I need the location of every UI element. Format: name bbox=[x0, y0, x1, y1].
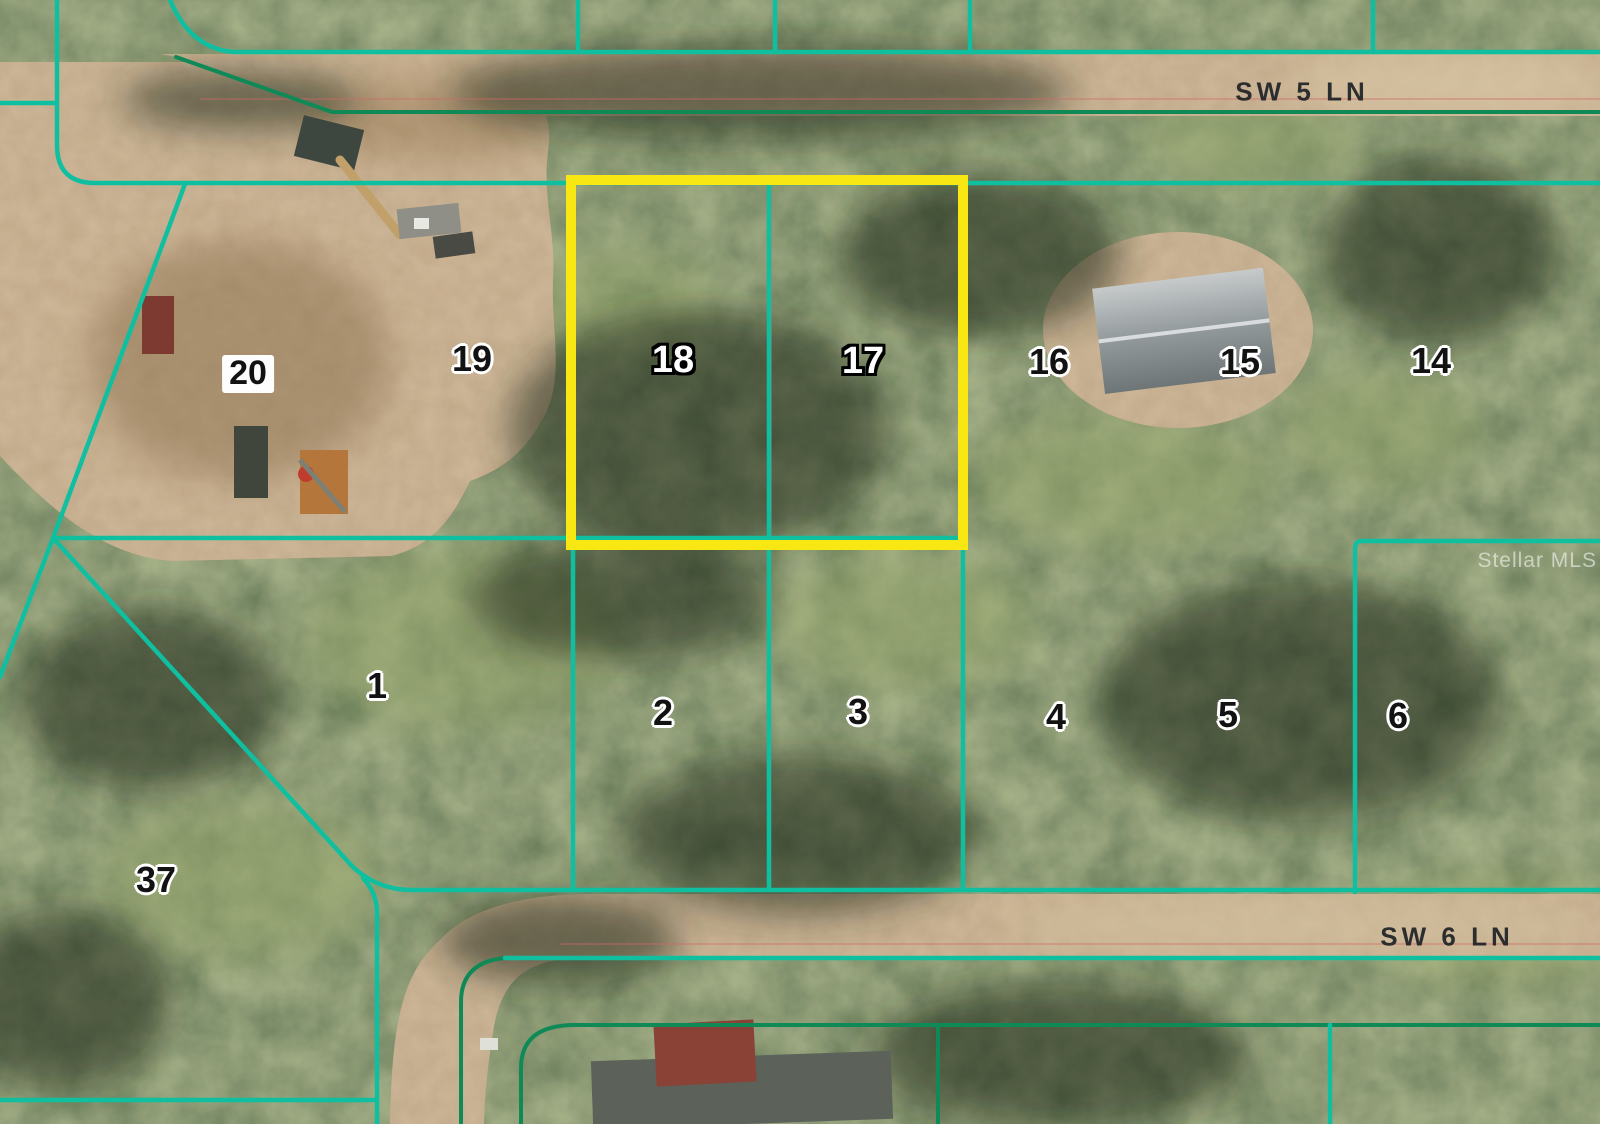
lot-label-4: 4 bbox=[1046, 699, 1066, 735]
satellite-scene bbox=[0, 0, 1600, 1124]
lot-label-2: 2 bbox=[653, 695, 673, 731]
white-vehicle bbox=[480, 1038, 498, 1050]
lot-label-3: 3 bbox=[848, 694, 868, 730]
lot-label-6: 6 bbox=[1388, 698, 1408, 734]
lot-label-18: 18 bbox=[652, 341, 694, 379]
lot-label-16: 16 bbox=[1029, 344, 1069, 380]
lot-label-20: 20 bbox=[222, 355, 274, 393]
lot-label-1: 1 bbox=[367, 668, 387, 704]
lot-label-37: 37 bbox=[136, 862, 176, 898]
lot-label-17: 17 bbox=[842, 342, 884, 380]
parcel-map: 20 19 18 17 16 15 14 1 2 3 4 5 6 37 SW 5… bbox=[0, 0, 1600, 1124]
lot-label-14: 14 bbox=[1411, 343, 1451, 379]
street-label-sw6ln: SW 6 LN bbox=[1380, 922, 1513, 953]
lot-label-15: 15 bbox=[1220, 344, 1260, 380]
lot-label-19: 19 bbox=[452, 341, 492, 377]
red-structure bbox=[653, 1019, 756, 1086]
lot-label-5: 5 bbox=[1218, 697, 1238, 733]
street-label-sw5ln: SW 5 LN bbox=[1235, 77, 1368, 108]
stellar-mls-watermark: Stellar MLS bbox=[1477, 549, 1597, 573]
